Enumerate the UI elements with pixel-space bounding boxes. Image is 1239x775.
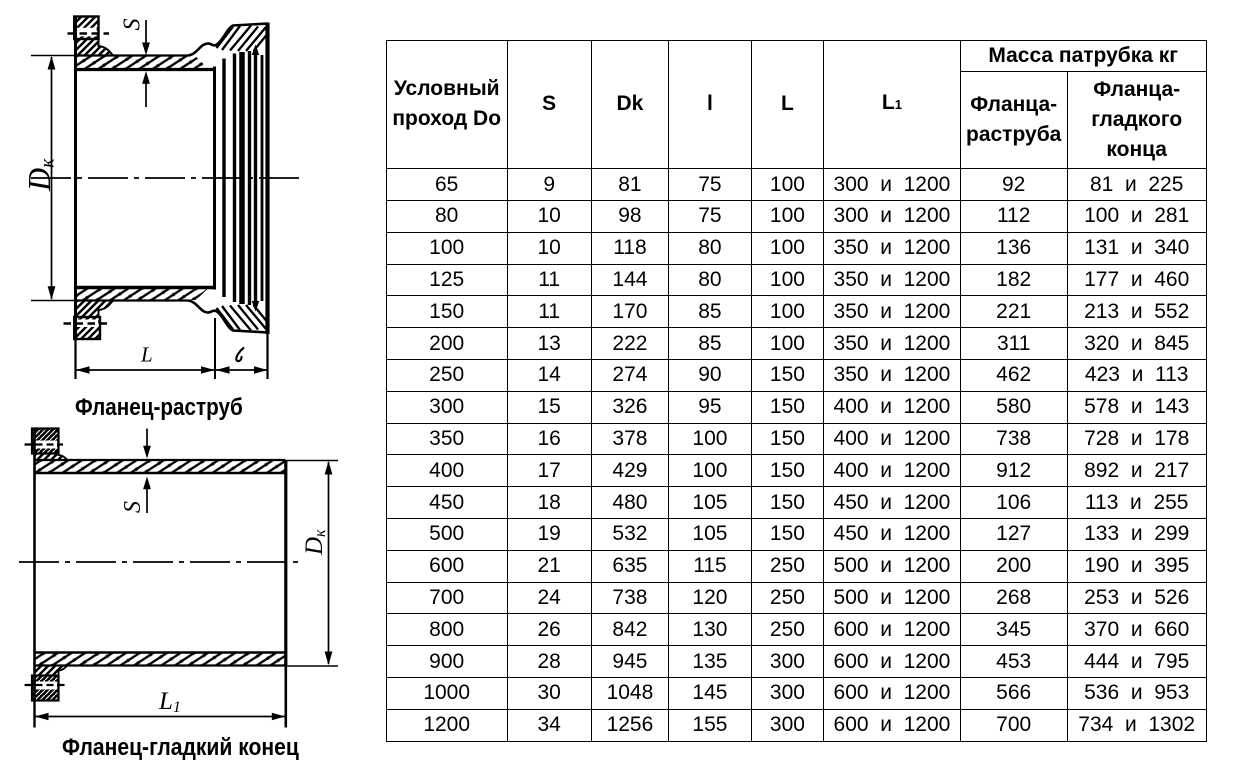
svg-text:S: S <box>120 501 146 513</box>
svg-text:L1: L1 <box>158 688 181 716</box>
svg-text:Dк: Dк <box>301 529 329 556</box>
svg-text:S: S <box>120 19 146 31</box>
svg-text:Dк: Dк <box>21 158 59 192</box>
svg-text:L: L <box>140 343 153 367</box>
